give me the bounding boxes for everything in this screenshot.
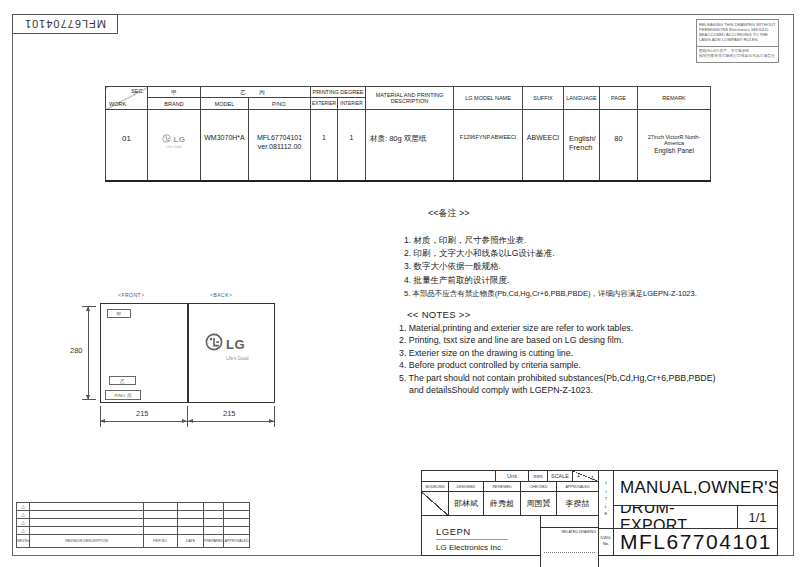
- notes-en-item-4: 4. Before product controlled by criteria…: [399, 359, 791, 371]
- warning-text-english: RELEASING THIS DRAWING WITHOUT PERMISSIO…: [697, 20, 778, 47]
- header-printing-degree: PRINTING DEGREE: [311, 87, 366, 98]
- header-work: WORK: [109, 101, 126, 107]
- revision-triangle-icon: △: [21, 504, 25, 509]
- dim-line-vertical: [88, 306, 89, 400]
- notes-cn-title: <<备注 >>: [428, 207, 792, 220]
- drawing-number: MFL67704101: [613, 528, 778, 556]
- work-table-row: 01 LG Life's Goo: [106, 110, 711, 181]
- cell-lg-model-name: F1296FYNP.ABWEECI: [454, 110, 523, 181]
- cell-material: 材质: 80g 双层纸: [366, 110, 454, 181]
- cell-pno: MFL67704101 ver.081112.00: [249, 110, 311, 181]
- revision-row: △: [17, 511, 250, 519]
- header-remark: REMARK: [638, 87, 711, 110]
- panel-divider: [187, 304, 189, 402]
- lg-symbol-icon: [205, 333, 223, 355]
- reviewed-name: 薛秀超: [483, 491, 521, 516]
- scale-denominator: 1: [591, 475, 594, 481]
- revision-triangle-icon: △: [21, 520, 25, 525]
- cell-interier: 1: [338, 110, 366, 181]
- pno-placeholder-box: P/NO. 丙: [105, 390, 141, 400]
- cell-brand: LG Life's Good: [148, 110, 201, 181]
- header-language: LANGUAGE: [564, 87, 600, 110]
- lg-logo-small: LG Life's Good: [148, 134, 200, 149]
- arrowhead-down-icon: [86, 395, 90, 400]
- notes-cn-item-1: 1. 材质，印刷，尺寸参照作业表.: [404, 234, 792, 247]
- lg-logo-tagline: Life's Good: [166, 145, 181, 149]
- cell-language: English/ French: [564, 110, 600, 181]
- arrowhead-left-icon: [188, 419, 193, 423]
- yi-placeholder-box: 乙: [109, 376, 136, 385]
- ext-line-right: [274, 406, 275, 427]
- pno-version: ver.081112.00: [249, 143, 310, 152]
- notes-chinese: <<备注 >> 1. 材质，印刷，尺寸参照作业表. 2. 印刷，文字大小和线条以…: [400, 207, 792, 300]
- header-work-sec: SEC. WORK: [106, 87, 148, 110]
- title-block: Unit mm SCALE 1 1 MODELING DESIGNED REVI…: [421, 470, 778, 556]
- related-drawing-dotted-line: [544, 552, 595, 553]
- dim-height-value: 280: [70, 346, 83, 355]
- cell-model: WM3070H*A: [201, 110, 249, 181]
- title-side-label-cell: TITLE: [598, 470, 614, 529]
- header-material: MATERIAL AND PRINTING DESCRIPTION: [366, 87, 454, 110]
- cell-suffix: ABWEECI: [523, 110, 564, 181]
- related-drawing-label: RELATED DRAWING: [561, 530, 596, 534]
- prepared-header: PREPARED: [204, 535, 224, 548]
- dim-width-right-value: 215: [223, 409, 236, 418]
- revision-triangle-icon: △: [21, 512, 25, 517]
- doc-number-box: MFL67704101: [12, 14, 118, 34]
- header-suffix: SUFFIX: [523, 87, 564, 110]
- company-full-name: LG Electronics Inc.: [436, 543, 540, 552]
- notes-en-title: << NOTES >>: [407, 309, 791, 320]
- dim-width-left-value: 215: [136, 409, 149, 418]
- cell-remark: 27inch VictorR North-America English Pan…: [638, 110, 711, 181]
- revision-description-header: REVISION DESCRIPTION: [30, 535, 144, 548]
- header-jia: 甲: [148, 87, 201, 98]
- notes-cn-item-5: 5. 本部品不应含有禁止物质(Pb,Cd,Hg,Cr+6,PBB,PBDE)，详…: [404, 287, 792, 300]
- warning-box: RELEASING THIS DRAWING WITHOUT PERMISSIO…: [696, 19, 779, 63]
- lg-logo-tagline: Life's Good: [226, 356, 265, 361]
- date-header: DATE: [178, 535, 204, 548]
- title-side-label: TITLE: [604, 471, 609, 528]
- lg-logo-text: LG: [226, 337, 245, 352]
- remark-line1: 27inch VictorR North-America: [638, 134, 710, 146]
- cell-page: 80: [600, 110, 638, 181]
- doc-title-line1: MANUAL,OWNER'S: [613, 470, 778, 506]
- engineering-drawing-sheet: MFL67704101 RELEASING THIS DRAWING WITHO…: [0, 0, 802, 567]
- revision-row: △: [17, 527, 250, 535]
- company-short-name: LGEPN: [436, 526, 508, 540]
- remark-line2: English Panel: [638, 147, 710, 154]
- doc-number-rotated: MFL67704101: [24, 18, 106, 30]
- arrowhead-up-icon: [86, 306, 90, 311]
- jia-placeholder-box: 甲: [107, 309, 131, 318]
- revision-table-footer: REV.No. REVISION DESCRIPTION PER NO. DAT…: [17, 535, 250, 548]
- arrowhead-right-icon: [269, 419, 274, 423]
- warning-text-chinese: 图纸为LG的资产，非法散发时， 根据国家有关法律和公司规定追究其法律责任: [697, 47, 778, 60]
- warning-cn-line2: 根据国家有关法律和公司规定追究其法律责任: [699, 54, 776, 59]
- lg-logo-back-panel: LG Life's Good: [205, 333, 265, 361]
- notes-en-item-5-cont: and detailsShould comply with LGEPN-Z-10…: [409, 384, 791, 396]
- header-interier: INTERIER: [338, 98, 366, 110]
- dwg-label-line2: No.: [599, 541, 613, 547]
- header-yi-bing: 乙 丙: [201, 87, 311, 98]
- pno-number: MFL67704101: [249, 134, 310, 143]
- arrowhead-right-icon: [182, 419, 187, 423]
- dwg-label-line1: DWG.: [599, 535, 613, 541]
- header-pno: P/NO.: [249, 98, 311, 110]
- back-panel-label: <BACK>: [210, 292, 232, 298]
- ext-line-mid: [187, 406, 188, 427]
- notes-en-item-2: 2. Printing, tsxt size and line are base…: [399, 334, 791, 346]
- language-line2: French: [569, 143, 599, 152]
- sheet-number: 1/1: [737, 505, 778, 529]
- header-page: PAGE: [600, 87, 638, 110]
- header-brand: BRAND: [148, 98, 201, 110]
- revision-triangle-icon: △: [21, 528, 25, 533]
- header-lg-model-name: LG MODEL NAME: [454, 87, 523, 110]
- header-sec: SEC.: [131, 88, 144, 94]
- notes-cn-item-2: 2. 印刷，文字大小和线条以LG设计基准.: [404, 247, 792, 260]
- company-cell: LGEPN LG Electronics Inc.: [421, 515, 541, 556]
- lg-symbol-icon: [162, 134, 171, 144]
- revision-row: △: [17, 519, 250, 527]
- notes-en-item-3: 3. Exterier size on the drawing is cutti…: [399, 347, 791, 359]
- front-panel-label: <FRONT>: [118, 292, 145, 298]
- arrowhead-left-icon: [100, 419, 105, 423]
- work-spec-table: SEC. WORK 甲 乙 丙 PRINTING DEGREE MATERIAL…: [105, 86, 711, 182]
- approvaled-name: 李揆喆: [556, 491, 599, 516]
- related-drawing-cell: RELATED DRAWING: [540, 527, 599, 567]
- checked-name: 周国贇: [520, 491, 557, 516]
- notes-english: << NOTES >> 1. Material,printing and ext…: [399, 309, 791, 396]
- rev-no-header: REV.No.: [17, 535, 30, 548]
- notes-en-item-1: 1. Material,printing and exterier size a…: [399, 322, 791, 334]
- cell-exterier: 1: [311, 110, 338, 181]
- notes-cn-item-4: 4. 批量生产前取的设计限度.: [404, 274, 792, 287]
- modeling-name-cell: [421, 491, 449, 516]
- lg-logo-text: LG: [173, 135, 185, 144]
- language-line1: English/: [569, 134, 599, 143]
- revision-row: △: [17, 503, 250, 511]
- revision-table: △ △ △ △ REV.No. REVISION DESCRIPTION PER…: [16, 502, 250, 548]
- ext-line-left: [100, 406, 101, 427]
- scale-numerator: 1: [577, 472, 580, 478]
- panel-outline: 甲 乙 P/NO. 丙 LG Life's Good: [100, 303, 275, 403]
- designed-name: 邵林斌: [448, 491, 484, 516]
- header-model: MODEL: [201, 98, 249, 110]
- cell-work-no: 01: [106, 110, 148, 181]
- notes-cn-item-3: 3. 数字大小依据一般规格.: [404, 260, 792, 273]
- approvaled-header: APPROVALED: [224, 535, 250, 548]
- dwg-no-side-label: DWG. No.: [598, 528, 614, 556]
- header-exterier: EXTERIER: [311, 98, 338, 110]
- doc-title-line2: DRUM-EXPORT: [613, 505, 739, 529]
- notes-en-item-5: 5. The part should not contain prohibite…: [399, 372, 791, 384]
- per-no-header: PER NO.: [144, 535, 178, 548]
